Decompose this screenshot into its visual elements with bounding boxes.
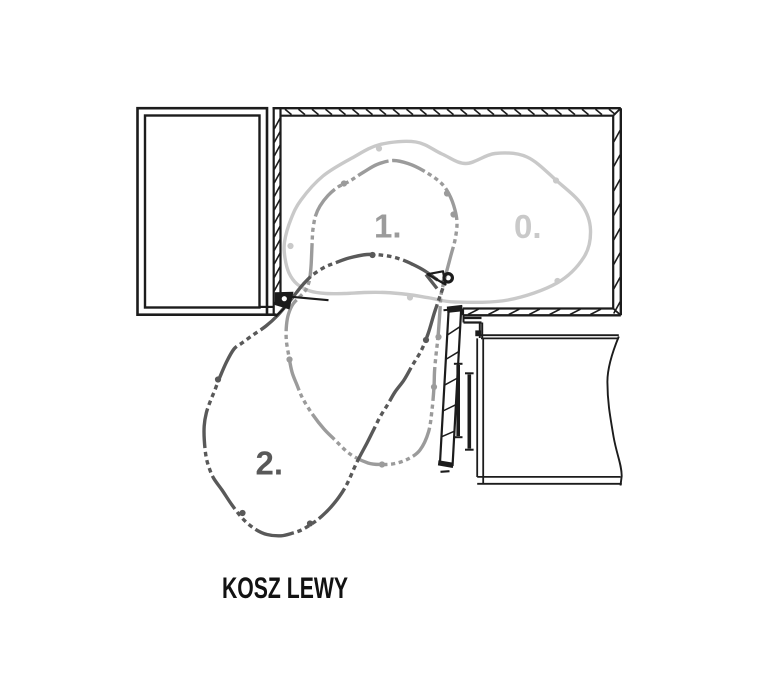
svg-text:0.: 0. [514,208,542,245]
svg-text:1.: 1. [374,208,402,245]
svg-text:2.: 2. [256,445,284,482]
svg-text:KOSZ LEWY: KOSZ LEWY [222,572,348,605]
